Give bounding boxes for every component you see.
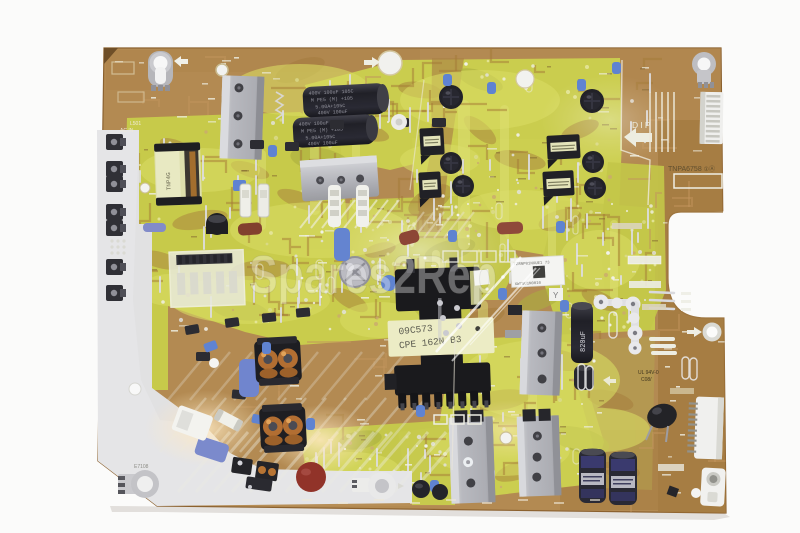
svg-text:Spares2Rep: Spares2Rep [249, 245, 497, 305]
